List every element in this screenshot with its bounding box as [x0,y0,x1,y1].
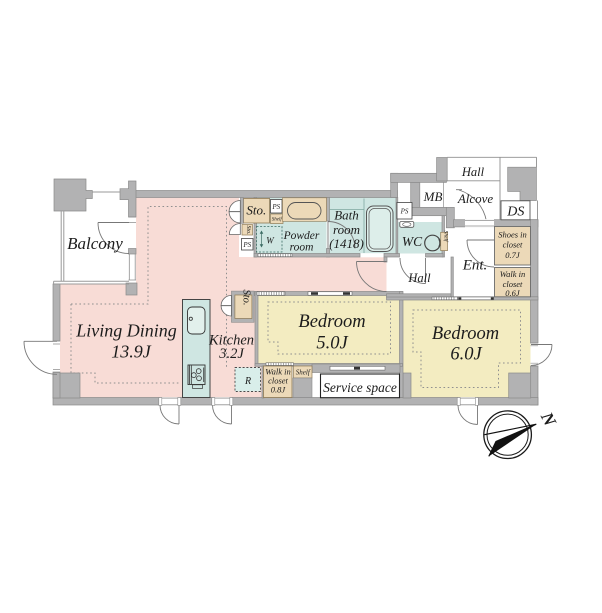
svg-text:Shelf: Shelf [443,231,450,243]
svg-text:3.2J: 3.2J [218,346,244,362]
svg-text:closet: closet [503,240,523,250]
svg-text:Sto.: Sto. [245,225,251,234]
svg-text:R: R [244,376,251,387]
svg-text:Alcove: Alcove [457,191,494,206]
svg-text:5.0J: 5.0J [316,334,348,354]
svg-text:Powder: Powder [283,230,320,242]
svg-text:Sto.: Sto. [246,203,266,218]
svg-text:MB: MB [423,189,443,204]
svg-text:0.8J: 0.8J [271,385,287,395]
svg-text:Bedroom: Bedroom [298,312,365,332]
svg-text:Shoes in: Shoes in [498,230,527,240]
svg-text:Balcony: Balcony [67,234,123,253]
svg-text:PS: PS [400,207,409,215]
svg-text:Bath: Bath [334,208,359,223]
svg-text:13.9J: 13.9J [111,342,152,362]
svg-text:Shelf: Shelf [296,369,311,377]
svg-text:Walk in: Walk in [500,269,525,279]
svg-text:6.0J: 6.0J [450,345,482,365]
svg-text:Hall: Hall [461,165,485,179]
svg-text:Hall: Hall [407,271,431,285]
svg-text:PS: PS [271,203,280,211]
svg-text:Service space: Service space [323,380,397,395]
svg-text:Sto.: Sto. [241,289,252,305]
svg-text:room: room [333,222,360,237]
svg-text:Ent.: Ent. [462,258,488,274]
svg-text:PS: PS [242,241,251,249]
svg-text:DS: DS [506,205,524,220]
svg-text:room: room [290,242,314,254]
svg-text:(1418): (1418) [329,236,364,251]
svg-text:Bedroom: Bedroom [432,324,499,344]
svg-text:Living Dining: Living Dining [75,321,177,341]
svg-text:N: N [536,408,561,430]
svg-text:0.6J: 0.6J [505,288,521,298]
svg-text:Shelf: Shelf [272,218,283,223]
svg-text:0.7J: 0.7J [505,250,521,260]
svg-text:WC: WC [402,234,423,249]
